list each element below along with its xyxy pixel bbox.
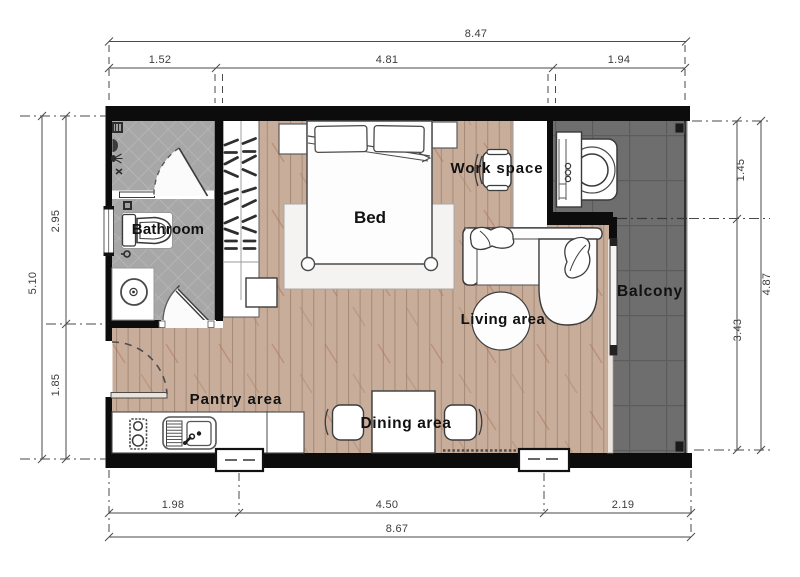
svg-text:Pantry area: Pantry area — [190, 391, 283, 408]
svg-text:Balcony: Balcony — [617, 283, 683, 300]
svg-text:5.10: 5.10 — [27, 272, 39, 295]
svg-text:1.45: 1.45 — [735, 159, 747, 182]
svg-text:Bathroom: Bathroom — [132, 221, 204, 238]
svg-text:1.52: 1.52 — [149, 54, 172, 66]
svg-text:Work space: Work space — [451, 160, 544, 177]
svg-text:Living area: Living area — [461, 311, 546, 328]
svg-text:Dining area: Dining area — [360, 415, 451, 432]
svg-text:3.43: 3.43 — [732, 319, 744, 342]
svg-text:8.47: 8.47 — [465, 28, 488, 40]
svg-text:8.67: 8.67 — [386, 523, 409, 535]
svg-text:1.85: 1.85 — [50, 374, 62, 397]
svg-text:2.19: 2.19 — [612, 499, 635, 511]
svg-text:2.95: 2.95 — [50, 210, 62, 233]
svg-text:1.98: 1.98 — [162, 499, 185, 511]
svg-text:4.87: 4.87 — [761, 273, 773, 296]
svg-text:4.50: 4.50 — [376, 499, 399, 511]
svg-text:4.81: 4.81 — [376, 54, 399, 66]
svg-text:1.94: 1.94 — [608, 54, 631, 66]
svg-text:Bed: Bed — [354, 208, 386, 227]
